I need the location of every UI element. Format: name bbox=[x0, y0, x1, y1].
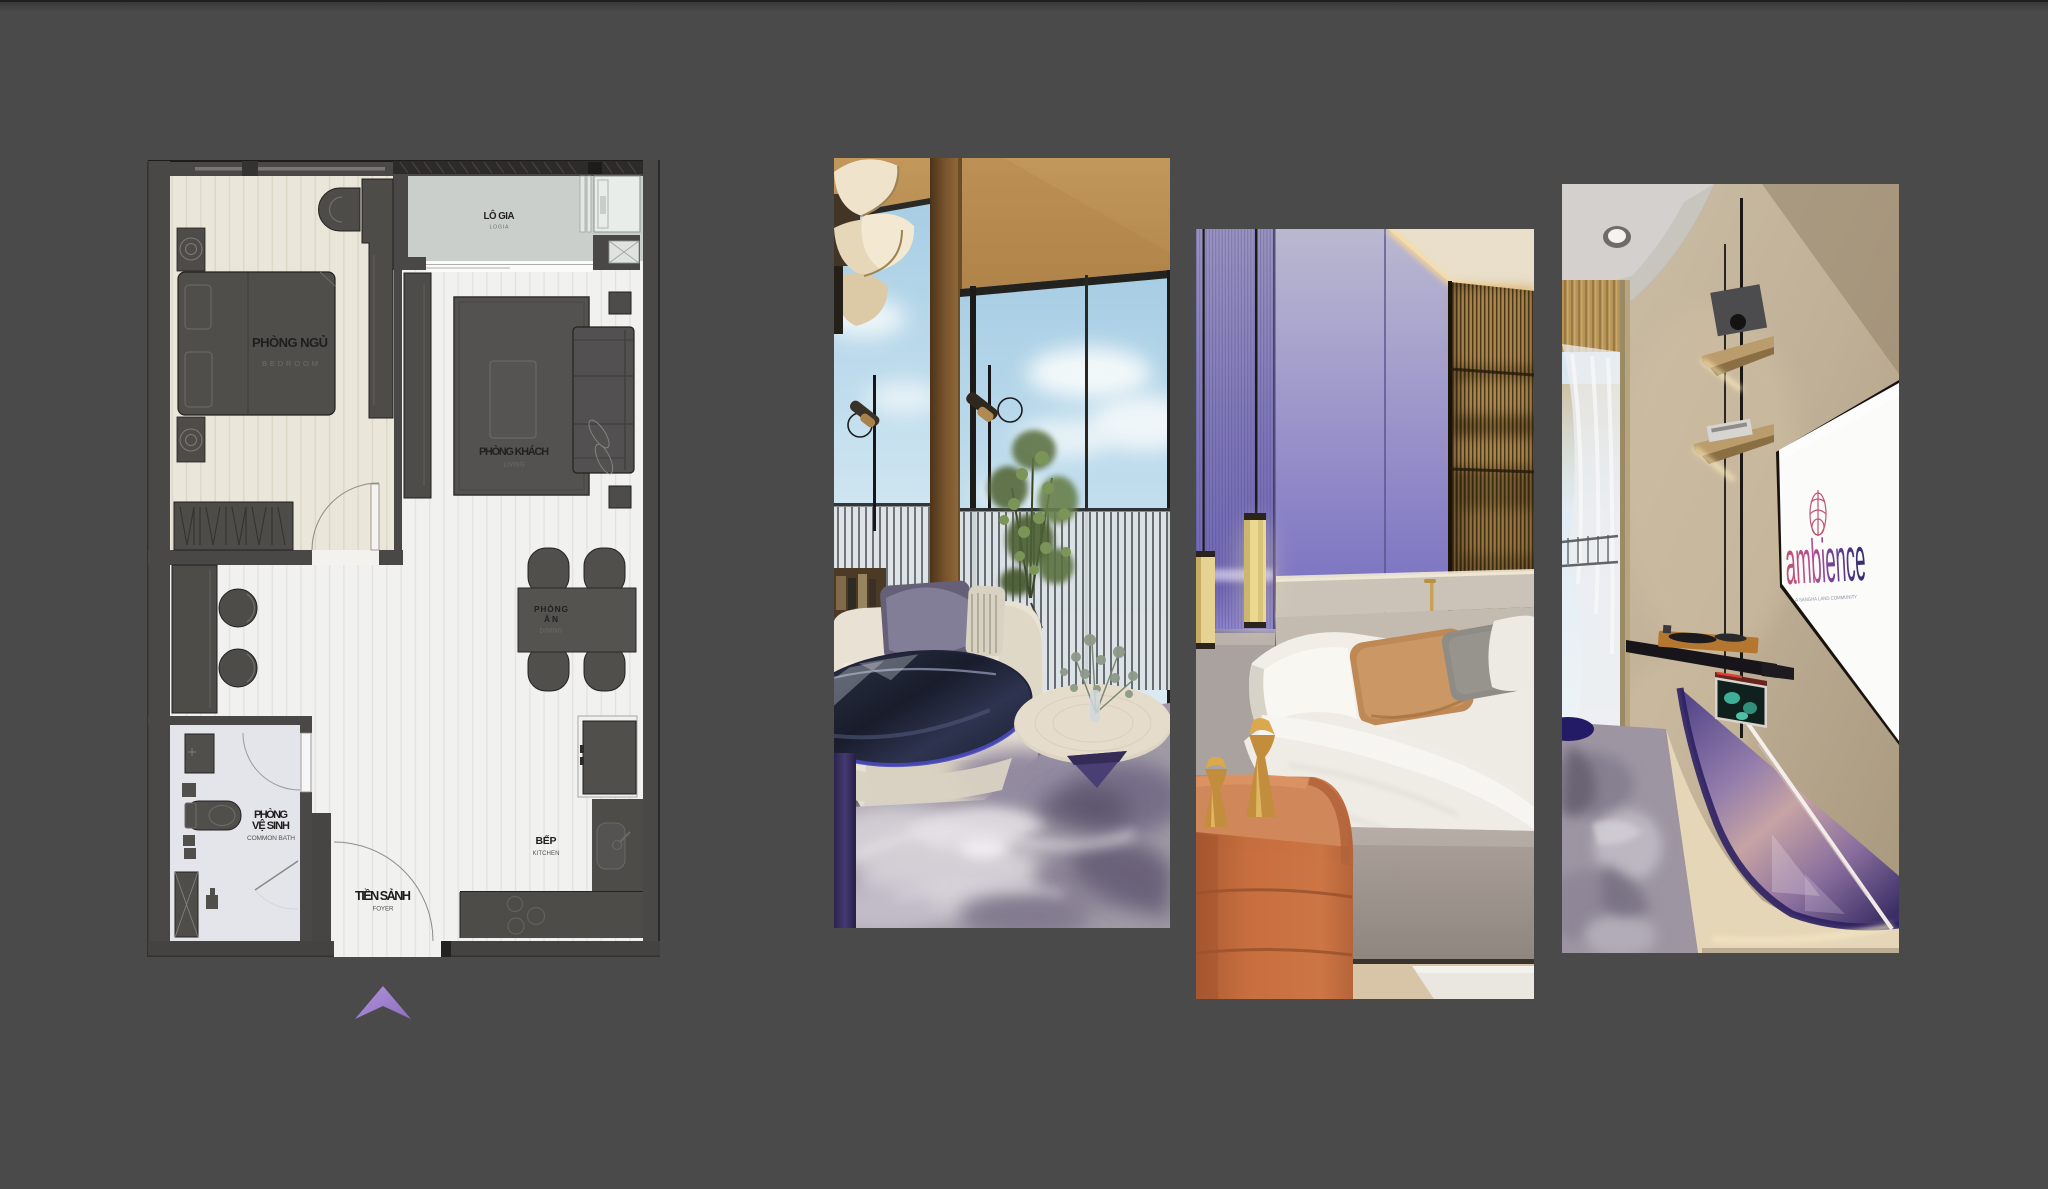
svg-text:BẾP: BẾP bbox=[536, 834, 557, 847]
svg-text:KITCHEN: KITCHEN bbox=[533, 850, 560, 857]
svg-text:LIVING: LIVING bbox=[504, 463, 525, 469]
svg-text:LÔ GIA: LÔ GIA bbox=[484, 210, 515, 222]
svg-text:DINING: DINING bbox=[540, 628, 563, 635]
svg-text:PHÒNG NGỦ: PHÒNG NGỦ bbox=[252, 335, 328, 350]
svg-text:ĂN: ĂN bbox=[544, 614, 558, 624]
svg-text:TIỀN SẢNH: TIỀN SẢNH bbox=[355, 888, 411, 903]
svg-text:COMMON BATH: COMMON BATH bbox=[247, 835, 295, 842]
svg-text:VỆ SINH: VỆ SINH bbox=[252, 819, 290, 832]
svg-text:ambience: ambience bbox=[1784, 525, 1868, 598]
svg-text:PHÒNG KHÁCH: PHÒNG KHÁCH bbox=[479, 445, 549, 458]
svg-text:LOGIA: LOGIA bbox=[490, 225, 510, 231]
svg-text:FOYER: FOYER bbox=[373, 906, 395, 913]
svg-text:PHÒNG: PHÒNG bbox=[534, 603, 568, 614]
